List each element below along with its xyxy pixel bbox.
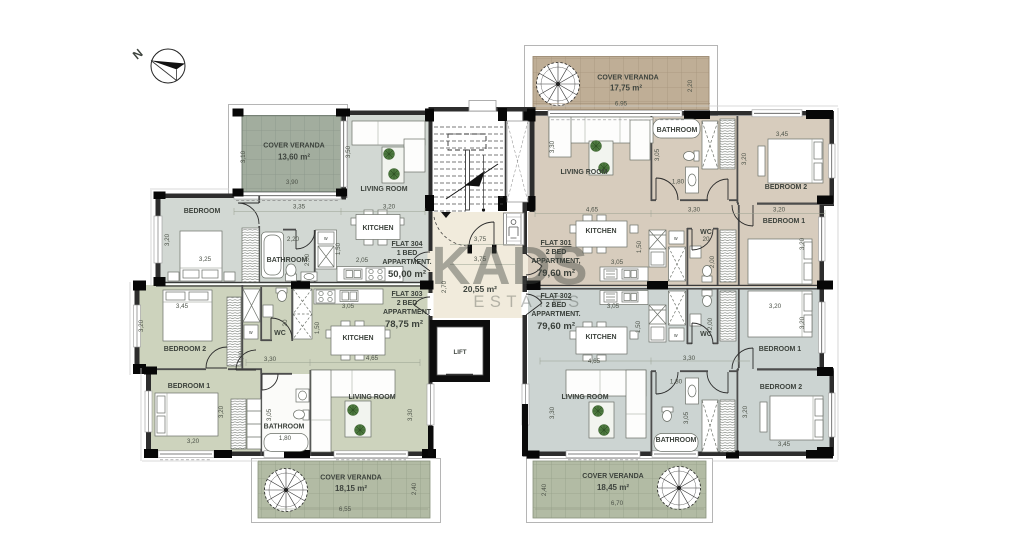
svg-text:BEDROOM 2: BEDROOM 2 [765, 184, 808, 191]
svg-text:18,45 m²: 18,45 m² [597, 483, 629, 492]
svg-text:3,20: 3,20 [769, 303, 782, 310]
svg-text:1,80: 1,80 [672, 179, 685, 186]
svg-text:COVER VERANDA: COVER VERANDA [597, 75, 658, 82]
svg-text:3,20: 3,20 [187, 438, 200, 445]
svg-text:4,65: 4,65 [366, 355, 379, 362]
svg-text:3,50: 3,50 [345, 145, 352, 158]
svg-text:COVER VERANDA: COVER VERANDA [263, 143, 324, 150]
svg-text:1,50: 1,50 [314, 321, 321, 334]
svg-text:3,30: 3,30 [683, 355, 696, 362]
svg-text:w: w [674, 333, 678, 339]
svg-text:COVER VERANDA: COVER VERANDA [582, 473, 643, 480]
svg-text:APPARTMENT: APPARTMENT [383, 309, 432, 316]
svg-text:BATHROOM: BATHROOM [656, 437, 697, 444]
svg-text:3,20: 3,20 [383, 204, 396, 211]
svg-text:3,30: 3,30 [549, 140, 556, 153]
svg-text:1,50: 1,50 [636, 240, 643, 253]
svg-text:KITCHEN: KITCHEN [585, 228, 616, 235]
svg-text:BEDROOM 1: BEDROOM 1 [168, 383, 211, 390]
svg-text:LIFT: LIFT [453, 349, 466, 356]
svg-text:BEDROOM 1: BEDROOM 1 [763, 218, 806, 225]
svg-text:3,05: 3,05 [611, 259, 624, 266]
svg-text:3,90: 3,90 [286, 179, 299, 186]
svg-text:BEDROOM 1: BEDROOM 1 [759, 346, 802, 353]
svg-text:17,75 m²: 17,75 m² [610, 84, 642, 93]
svg-text:FLAT 304: FLAT 304 [392, 241, 423, 248]
svg-text:6,70: 6,70 [611, 500, 624, 507]
svg-text:LIVING ROOM: LIVING ROOM [360, 186, 407, 193]
svg-text:1 BED: 1 BED [397, 250, 418, 257]
svg-text:COVER VERANDA: COVER VERANDA [320, 475, 381, 482]
svg-text:6,95: 6,95 [615, 101, 628, 108]
svg-text:3,45: 3,45 [778, 441, 791, 448]
svg-text:3,10: 3,10 [240, 150, 247, 163]
svg-text:2,00: 2,00 [707, 317, 714, 330]
svg-text:3,05: 3,05 [683, 411, 690, 424]
svg-text:3,30: 3,30 [407, 408, 414, 421]
svg-text:50,00 m²: 50,00 m² [388, 269, 426, 280]
svg-text:3,45: 3,45 [176, 303, 189, 310]
svg-text:1,80: 1,80 [279, 435, 292, 442]
svg-text:3,05: 3,05 [266, 408, 273, 421]
svg-text:3,05: 3,05 [607, 303, 620, 310]
svg-text:2,40: 2,40 [541, 483, 548, 496]
svg-text:APPARTMENT.: APPARTMENT. [531, 311, 580, 318]
svg-text:3,20: 3,20 [164, 233, 171, 246]
svg-text:2,40: 2,40 [411, 482, 418, 495]
svg-text:BATHROOM: BATHROOM [657, 127, 698, 134]
svg-text:2 BED: 2 BED [397, 300, 418, 307]
svg-text:3,20: 3,20 [138, 319, 145, 332]
svg-text:1,10: 1,10 [238, 350, 245, 363]
svg-text:BEDROOM 2: BEDROOM 2 [164, 346, 207, 353]
svg-text:13,60 m²: 13,60 m² [278, 153, 310, 162]
svg-text:KADS: KADS [431, 236, 588, 296]
svg-text:79,60 m²: 79,60 m² [537, 321, 575, 332]
svg-text:BATHROOM: BATHROOM [264, 424, 305, 431]
svg-text:3,05: 3,05 [342, 303, 355, 310]
svg-text:2,20: 2,20 [287, 236, 300, 243]
svg-text:18,15 m²: 18,15 m² [335, 484, 367, 493]
svg-text:4,65: 4,65 [588, 358, 601, 365]
svg-text:WC: WC [700, 331, 712, 338]
svg-text:1,50: 1,50 [635, 320, 642, 333]
svg-text:w: w [324, 236, 328, 242]
svg-text:KITCHEN: KITCHEN [585, 334, 616, 341]
svg-text:3,30: 3,30 [549, 406, 556, 419]
svg-text:FLAT 303: FLAT 303 [392, 291, 423, 298]
svg-text:3,20: 3,20 [218, 405, 225, 418]
svg-text:BATHROOM: BATHROOM [267, 257, 308, 264]
svg-text:78,75 m²: 78,75 m² [385, 319, 423, 330]
svg-text:3,20: 3,20 [799, 237, 806, 250]
svg-text:2,00: 2,00 [709, 255, 716, 268]
svg-text:3,05: 3,05 [654, 148, 661, 161]
svg-text:BEDROOM 2: BEDROOM 2 [760, 384, 803, 391]
svg-text:3,20: 3,20 [799, 316, 806, 329]
svg-text:ESTATES: ESTATES [473, 293, 584, 311]
svg-text:3,45: 3,45 [776, 131, 789, 138]
svg-text:LIVING ROOM: LIVING ROOM [561, 394, 608, 401]
svg-text:WC: WC [274, 330, 286, 337]
svg-text:4,65: 4,65 [586, 207, 599, 214]
svg-text:w: w [249, 330, 253, 336]
svg-text:w: w [674, 236, 678, 242]
svg-text:20: 20 [702, 236, 710, 243]
svg-text:2,00: 2,00 [304, 253, 311, 266]
svg-text:3,30: 3,30 [688, 207, 701, 214]
svg-text:3,25: 3,25 [199, 256, 212, 263]
svg-text:LIVING ROOM: LIVING ROOM [348, 394, 395, 401]
svg-text:1,50: 1,50 [335, 242, 342, 255]
svg-text:1,80: 1,80 [670, 379, 683, 386]
svg-text:WC: WC [700, 229, 712, 236]
svg-text:6,55: 6,55 [339, 506, 352, 513]
svg-text:2,05: 2,05 [356, 257, 369, 264]
svg-text:3,20: 3,20 [741, 152, 748, 165]
svg-text:3,35: 3,35 [293, 204, 306, 211]
svg-text:3,20: 3,20 [742, 405, 749, 418]
svg-text:APPARTMENT.: APPARTMENT. [382, 259, 431, 266]
svg-text:20: 20 [282, 319, 289, 327]
svg-text:2,20: 2,20 [687, 79, 694, 92]
svg-text:BEDROOM: BEDROOM [184, 208, 221, 215]
svg-text:KITCHEN: KITCHEN [362, 225, 393, 232]
svg-text:3,30: 3,30 [264, 356, 277, 363]
svg-text:3,20: 3,20 [773, 207, 786, 214]
svg-text:KITCHEN: KITCHEN [342, 335, 373, 342]
svg-text:LIVING ROOM: LIVING ROOM [560, 169, 607, 176]
